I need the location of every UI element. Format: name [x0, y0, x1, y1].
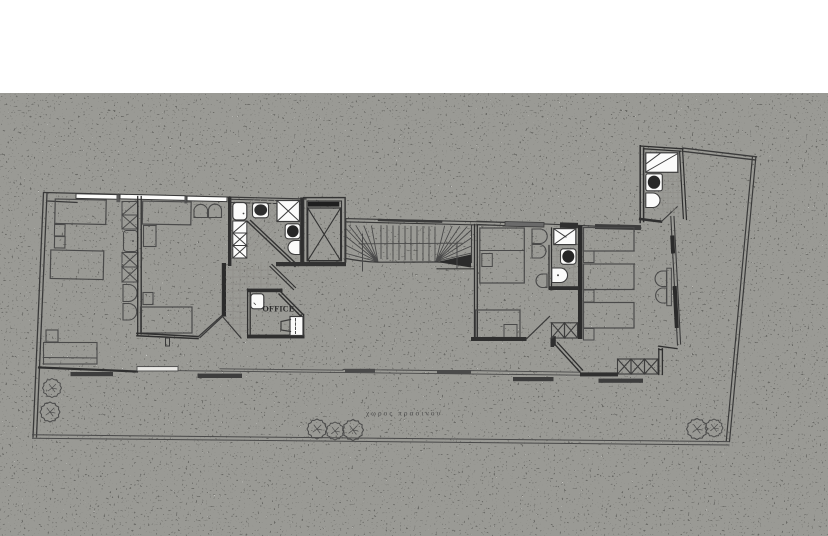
svg-text:χωρος πρασινου: χωρος πρασινου: [366, 410, 442, 418]
svg-text:OFFICE: OFFICE: [263, 305, 295, 314]
